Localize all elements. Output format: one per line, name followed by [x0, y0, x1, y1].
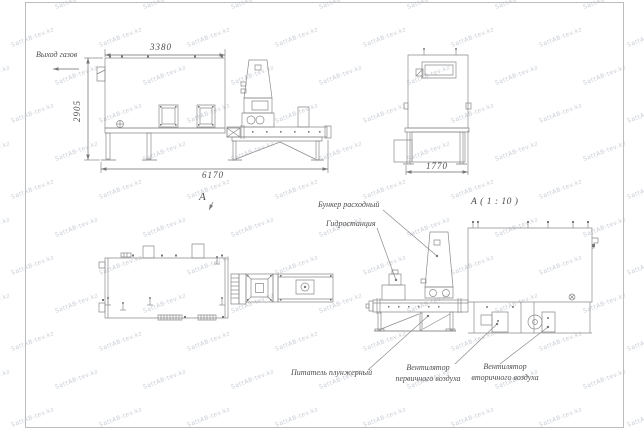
hydraulic-station-label: Гидростанция	[326, 219, 376, 228]
cad-linework	[0, 0, 644, 430]
drawing-sheet: SattAB-tev.kzSattAB-tev.kzSattAB-tev.kzS…	[0, 0, 644, 430]
view-a-arrow	[209, 202, 213, 210]
end-elevation-linework	[394, 48, 471, 175]
secondary-fan-label: Вентилятор вторичного воздуха	[464, 362, 546, 384]
dimension-3380: 3380	[150, 42, 172, 52]
plunger-feeder-label: Питатель плунжерный	[291, 368, 372, 377]
view-a-label: А	[199, 191, 207, 203]
detail-view-linework	[366, 210, 598, 370]
hopper-label: Бункер расходный	[318, 200, 379, 209]
dimension-1770: 1770	[426, 161, 448, 171]
dimension-6170: 6170	[202, 170, 224, 180]
side-elevation-linework	[53, 49, 331, 173]
gas-outlet-label: Выход газов	[36, 50, 77, 59]
dimension-2905: 2905	[72, 100, 82, 122]
primary-fan-label: Вентилятор первичного воздуха	[387, 363, 469, 385]
detail-view-title: А ( 1 : 10 )	[471, 197, 518, 207]
plan-view-linework	[99, 244, 333, 320]
